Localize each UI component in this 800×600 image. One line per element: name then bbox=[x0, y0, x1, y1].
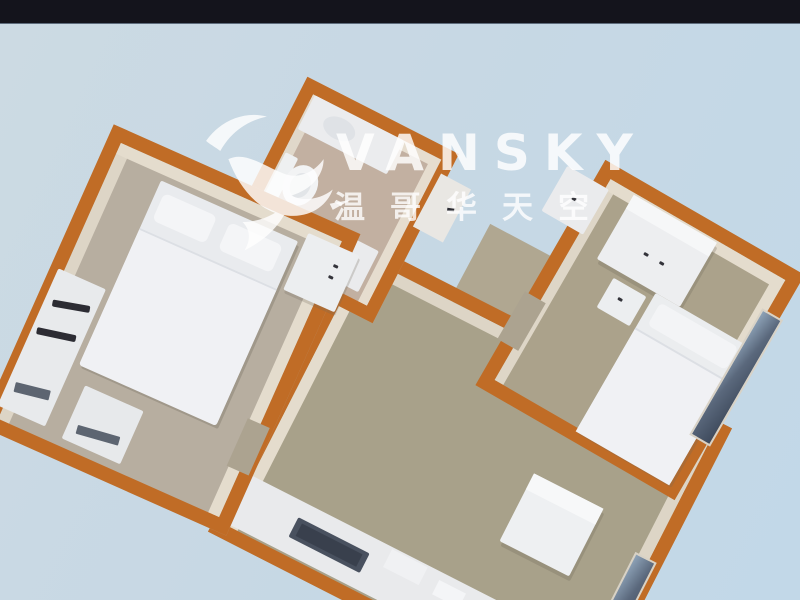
counter-box bbox=[432, 580, 466, 600]
wardrobe-handle bbox=[643, 252, 649, 257]
nightstand-handle bbox=[333, 264, 339, 269]
kitchen-sink bbox=[288, 517, 369, 573]
pillow bbox=[218, 222, 283, 273]
gray-slat bbox=[14, 382, 51, 400]
cabinet-handle bbox=[571, 196, 577, 201]
living-window bbox=[565, 552, 656, 600]
side-cabinet bbox=[541, 166, 609, 235]
nightstand-handle bbox=[617, 297, 623, 302]
vanity-sink bbox=[298, 95, 404, 174]
wardrobe-handle bbox=[659, 261, 665, 266]
gray-slat bbox=[76, 425, 121, 446]
wardrobe-top-face bbox=[626, 195, 717, 257]
screen-photo: VANSKY 温哥华天空 bbox=[0, 0, 800, 600]
nightstand-handle bbox=[328, 275, 334, 280]
counter-box bbox=[383, 549, 428, 585]
sink-basin bbox=[296, 523, 363, 566]
bench-unit bbox=[62, 385, 144, 464]
screen-bezel-top bbox=[0, 0, 800, 24]
fridge-cabinet bbox=[500, 473, 604, 576]
pillow bbox=[152, 193, 217, 244]
tv-slat bbox=[36, 327, 77, 342]
fridge-top-face bbox=[526, 473, 604, 524]
wash-basin bbox=[319, 111, 359, 146]
double-bed bbox=[80, 180, 298, 424]
kitchen-counter bbox=[219, 471, 520, 600]
nightstand bbox=[597, 278, 647, 326]
toilet-seat bbox=[285, 169, 315, 201]
tv-slat bbox=[52, 299, 91, 312]
door-handle bbox=[447, 208, 454, 212]
